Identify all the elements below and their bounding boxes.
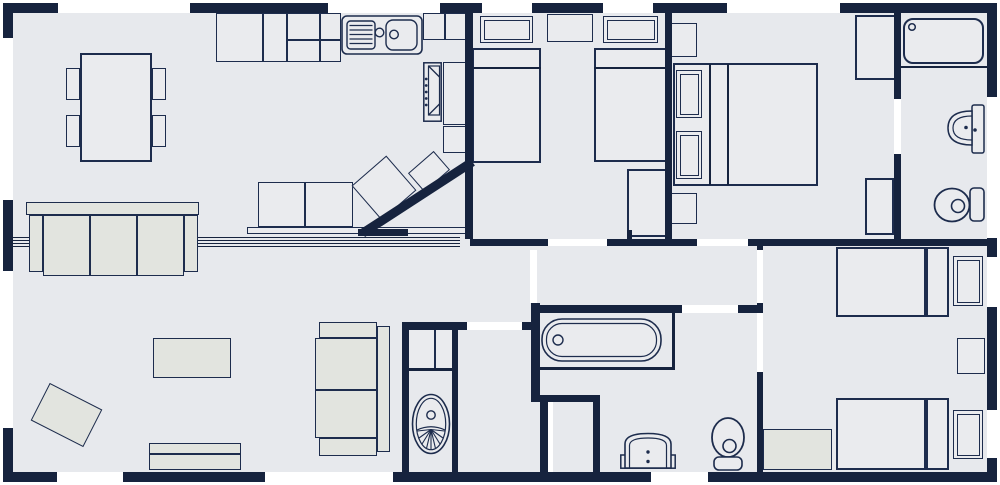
- dining-chair: [152, 115, 166, 147]
- bed-pillow-inner: [957, 414, 980, 456]
- floor-plan: [0, 0, 1000, 485]
- dining-chair: [152, 68, 166, 100]
- wardrobe: [855, 15, 897, 80]
- bedside-table: [547, 14, 593, 42]
- rear-bedroom-door-opening: [757, 250, 763, 303]
- cupboard-wall: [531, 395, 600, 402]
- sofa-cushion: [90, 215, 137, 276]
- single-bed: [594, 48, 667, 162]
- rear-bedroom-wall: [757, 303, 763, 313]
- utility-divider-line: [408, 368, 458, 371]
- window-opening: [482, 3, 532, 13]
- utility-wall: [452, 330, 458, 473]
- single-bed: [836, 247, 926, 317]
- tv-unit-shelf: [149, 443, 241, 454]
- sofa-cushion: [43, 215, 90, 276]
- patio-door-opening: [265, 472, 393, 482]
- sofa-back: [377, 326, 390, 452]
- window-opening: [651, 472, 708, 482]
- master-bedroom-door-opening: [697, 239, 748, 246]
- door-opening: [57, 472, 123, 482]
- bathroom-side-wall: [531, 303, 540, 400]
- kitchen-unit: [423, 13, 445, 40]
- sofa-cushion: [315, 338, 377, 390]
- sofa-arm: [184, 215, 198, 272]
- rear-bedroom-wall: [757, 372, 763, 472]
- bed-pillow: [953, 410, 983, 459]
- utility-cabinet: [408, 329, 435, 369]
- dining-chair: [66, 68, 80, 100]
- utility-wall: [402, 322, 409, 473]
- utility-cabinet: [435, 329, 453, 369]
- bed-headboard-line: [594, 67, 667, 69]
- bedside-table: [671, 193, 697, 224]
- coffee-table: [153, 338, 231, 378]
- window-opening: [328, 3, 440, 13]
- bathtub: [541, 318, 662, 362]
- kitchen-unit: [445, 13, 467, 40]
- window-opening: [3, 38, 13, 200]
- peninsula-cabinet: [258, 182, 305, 227]
- bed-pillow: [676, 70, 702, 118]
- sofa-cushion: [315, 390, 377, 438]
- kitchen-unit: [443, 62, 467, 125]
- bed-pillow-inner: [680, 135, 699, 176]
- bed-headboard-line: [709, 64, 711, 185]
- ensuite-divider-line: [898, 66, 987, 68]
- kitchen-unit: [320, 13, 341, 40]
- kitchen-unit: [287, 40, 320, 62]
- window-opening: [727, 3, 840, 13]
- window-opening: [987, 97, 997, 238]
- window-opening: [3, 271, 13, 428]
- wardrobe: [865, 178, 894, 235]
- toilet: [710, 416, 746, 471]
- dining-table: [80, 53, 152, 162]
- window-opening: [603, 3, 653, 13]
- exterior-wall-bottom: [3, 472, 997, 482]
- bed-pillow-inner: [484, 20, 530, 40]
- utility-wall: [522, 322, 534, 330]
- peninsula-cabinet: [305, 182, 353, 227]
- sofa-arm: [29, 215, 43, 272]
- bed-pillow-inner: [607, 20, 655, 40]
- hallway-door-opening: [530, 250, 537, 303]
- ensuite-door-opening: [894, 99, 901, 154]
- kitchen-sink: [341, 15, 423, 55]
- bedroom-cabinet: [763, 429, 832, 470]
- bed-pillow-inner: [680, 74, 699, 115]
- vestibule-door-opening: [467, 322, 522, 330]
- sofa-cushion: [137, 215, 184, 276]
- kitchen-unit: [443, 126, 467, 153]
- sofa-back: [26, 202, 199, 215]
- window-opening: [987, 257, 997, 307]
- bed-headboard-line: [727, 64, 729, 185]
- tv-unit: [149, 454, 241, 470]
- wall-stub: [358, 229, 408, 236]
- window-opening: [58, 3, 190, 13]
- wardrobe: [627, 169, 667, 237]
- oven: [423, 62, 442, 122]
- sofa-arm: [319, 438, 377, 456]
- cupboard-wall: [540, 402, 548, 472]
- utility-basin: [411, 393, 451, 456]
- bed-pillow: [480, 16, 533, 43]
- rear-bedroom-door-opening: [757, 313, 763, 372]
- kitchen-unit: [287, 13, 320, 40]
- kitchen-bedroom-wall: [465, 13, 473, 239]
- shower-tray: [903, 18, 984, 64]
- washbasin: [947, 104, 985, 154]
- bed-pillow: [603, 16, 658, 43]
- cupboard-wall: [593, 395, 600, 472]
- bed-pillow-inner: [957, 260, 980, 303]
- kitchen-unit: [216, 13, 263, 62]
- wardrobe-wall-stub: [627, 230, 632, 239]
- utility-wall: [402, 322, 467, 330]
- twin-bedroom-door-opening: [548, 239, 607, 246]
- bed-headboard: [926, 398, 949, 470]
- vanity-unit: [620, 431, 676, 469]
- bed-pillow: [953, 256, 983, 306]
- bed-pillow: [676, 131, 702, 179]
- kitchen-unit: [320, 40, 341, 62]
- dining-chair: [66, 115, 80, 147]
- bathroom-top-wall: [535, 305, 682, 313]
- bath-alcove-line: [533, 367, 675, 370]
- bedside-table: [957, 338, 985, 374]
- sofa-arm: [319, 322, 377, 338]
- cupboard-door-opening: [548, 402, 553, 472]
- bedroom-divider-wall: [665, 13, 672, 246]
- bathroom-door-opening: [682, 305, 738, 313]
- window-opening: [987, 410, 997, 458]
- kitchen-unit: [263, 13, 287, 62]
- single-bed: [472, 48, 541, 163]
- toilet: [933, 186, 985, 224]
- bath-alcove-line: [672, 313, 675, 369]
- single-bed: [836, 398, 926, 470]
- bed-headboard-line: [472, 67, 541, 69]
- bed-headboard: [926, 247, 949, 317]
- bedside-table: [671, 23, 697, 57]
